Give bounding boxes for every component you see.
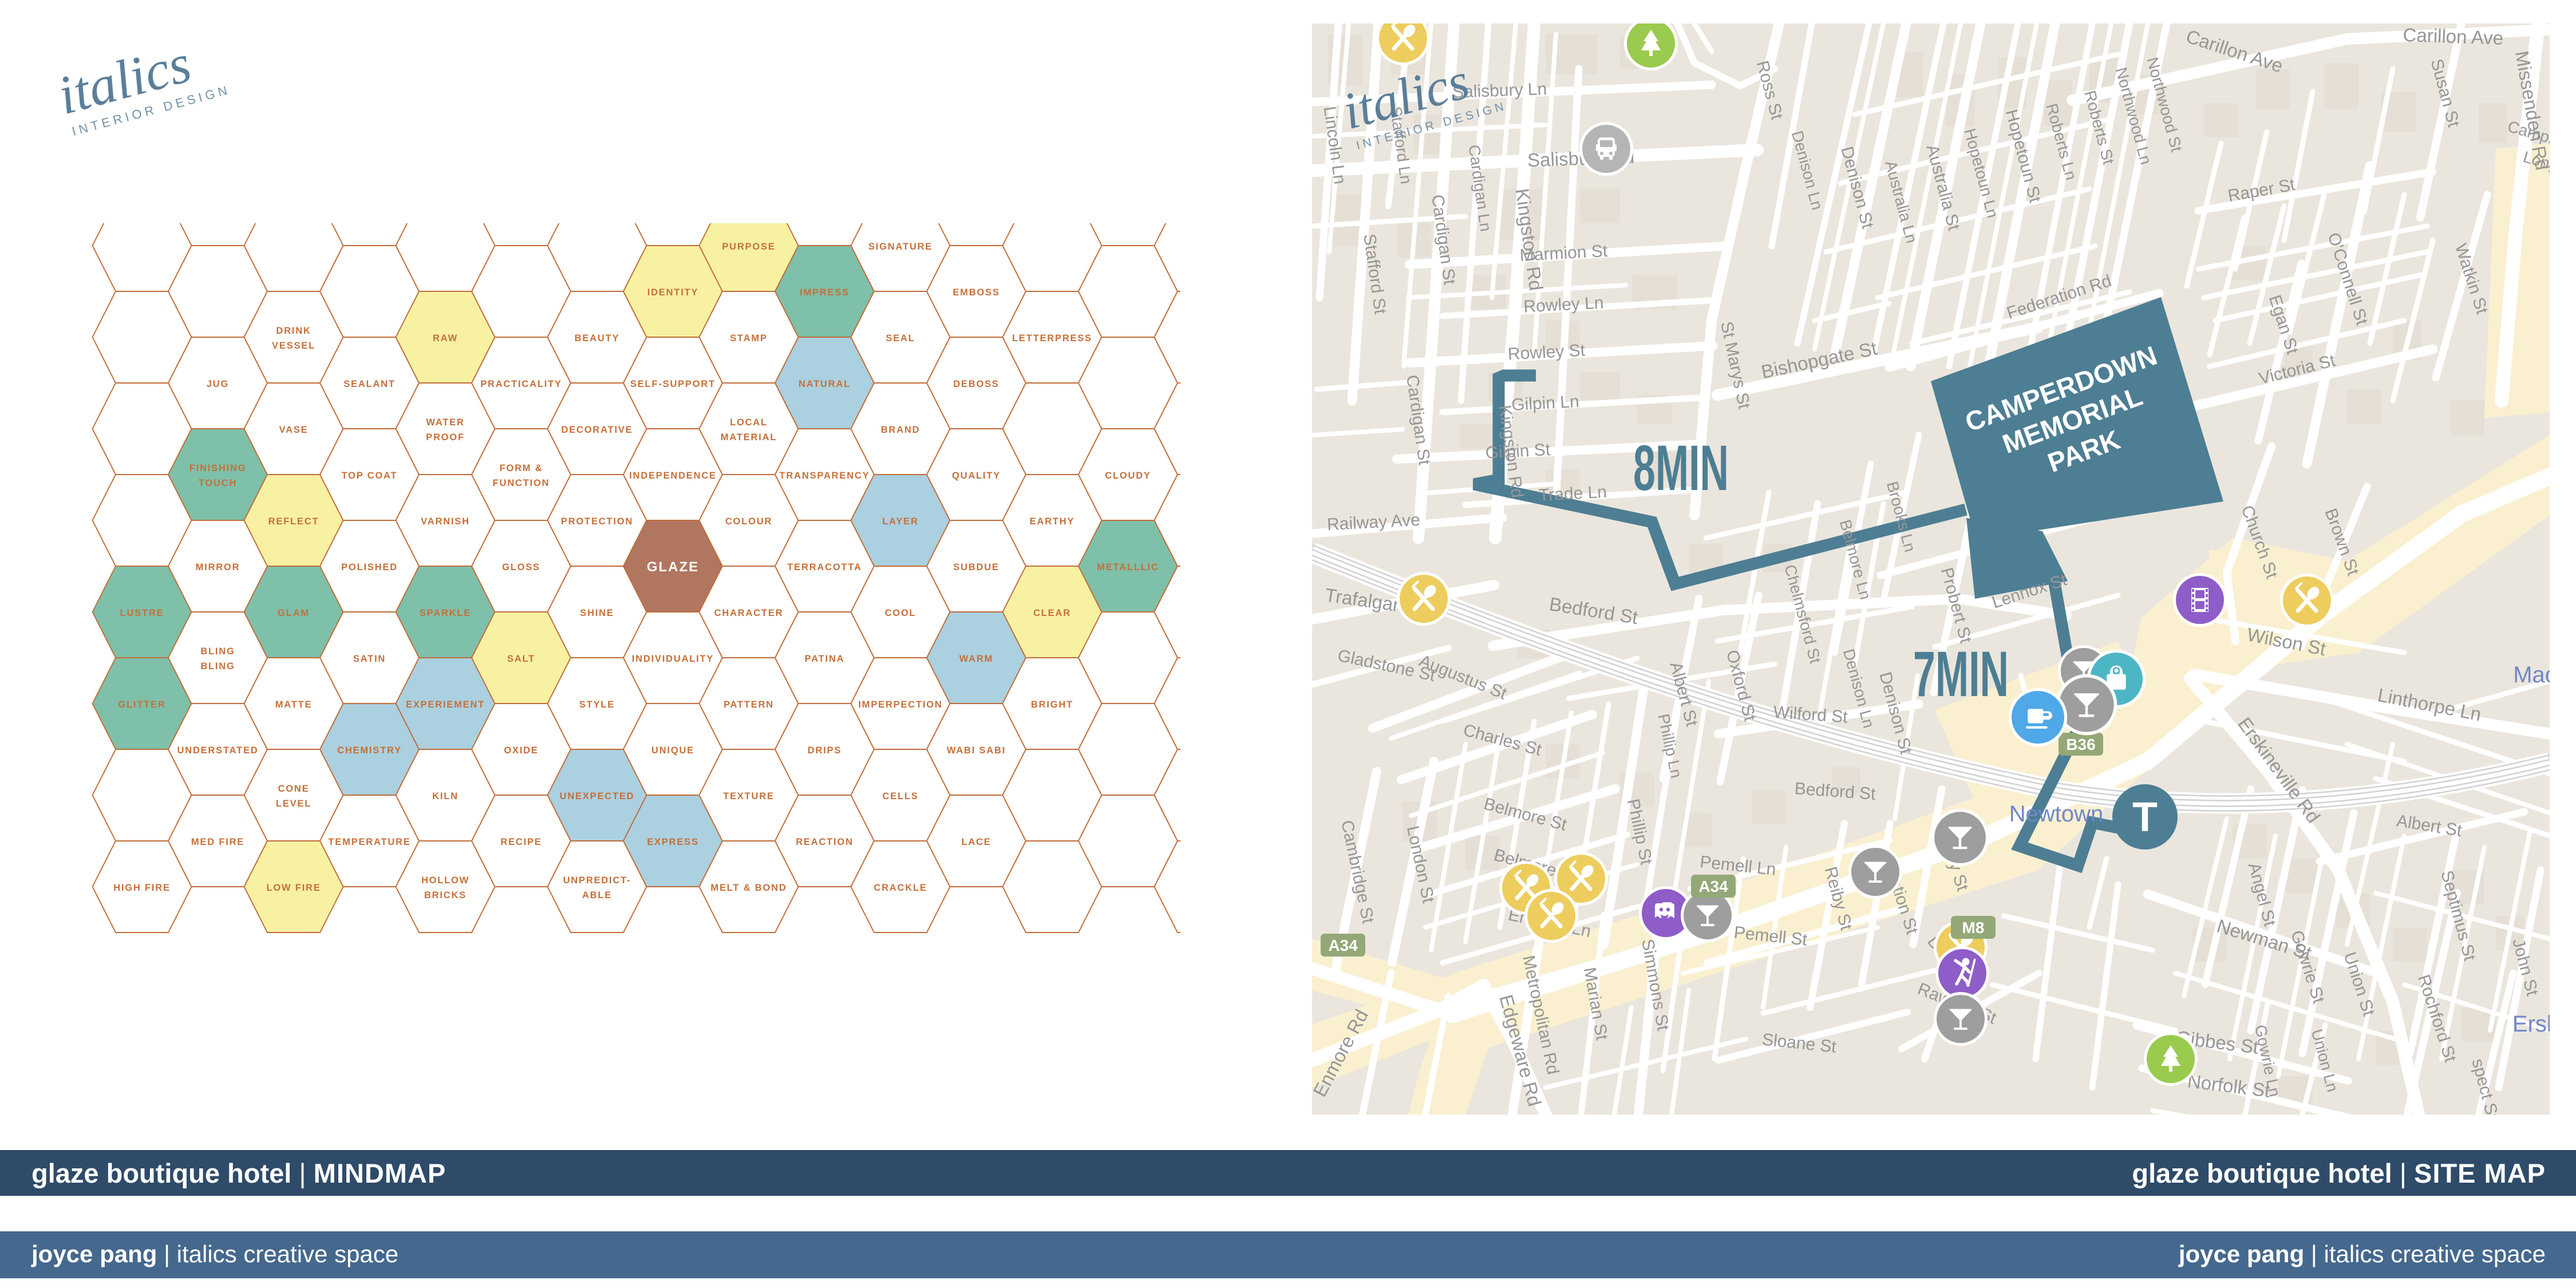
svg-text:KILN: KILN xyxy=(432,791,459,801)
svg-text:CLOUDY: CLOUDY xyxy=(1105,471,1151,481)
svg-text:INDIVIDUALITY: INDIVIDUALITY xyxy=(632,654,714,664)
svg-text:TOUCH: TOUCH xyxy=(199,478,237,488)
svg-text:A34: A34 xyxy=(1328,937,1358,954)
svg-text:BRICKS: BRICKS xyxy=(424,890,467,900)
svg-text:Gilpin St: Gilpin St xyxy=(1485,440,1551,463)
svg-text:BEAUTY: BEAUTY xyxy=(575,333,620,343)
svg-text:BLING: BLING xyxy=(200,646,235,657)
svg-text:glaze boutique hotel | MINDMA: glaze boutique hotel | MINDMAP xyxy=(31,1158,446,1188)
svg-text:COLOUR: COLOUR xyxy=(725,516,772,527)
svg-text:MATERIAL: MATERIAL xyxy=(721,432,777,442)
svg-text:SEALANT: SEALANT xyxy=(343,379,396,389)
svg-text:WATER: WATER xyxy=(426,417,464,428)
svg-text:BRIGHT: BRIGHT xyxy=(1031,700,1073,710)
svg-text:DRIPS: DRIPS xyxy=(808,745,841,756)
svg-text:SATIN: SATIN xyxy=(353,654,386,664)
svg-text:STAMP: STAMP xyxy=(730,333,768,343)
svg-text:CHEMISTRY: CHEMISTRY xyxy=(337,745,402,756)
svg-text:MIRROR: MIRROR xyxy=(196,562,240,572)
svg-text:GLAM: GLAM xyxy=(278,608,310,618)
svg-text:glaze boutique hotel | SITE M: glaze boutique hotel | SITE MAP xyxy=(2132,1158,2546,1188)
svg-text:8MIN: 8MIN xyxy=(1633,432,1729,504)
svg-text:JUG: JUG xyxy=(207,379,229,389)
svg-text:TEMPERATURE: TEMPERATURE xyxy=(328,837,410,847)
svg-text:SIGNATURE: SIGNATURE xyxy=(868,242,933,252)
svg-text:CHARACTER: CHARACTER xyxy=(714,608,784,618)
svg-text:GLAZE: GLAZE xyxy=(647,559,699,575)
svg-text:CLEAR: CLEAR xyxy=(1033,608,1071,618)
svg-text:FORM &: FORM & xyxy=(500,463,543,473)
svg-text:METALLLIC: METALLLIC xyxy=(1097,562,1159,572)
svg-text:VASE: VASE xyxy=(279,425,309,435)
svg-text:SELF-SUPPORT: SELF-SUPPORT xyxy=(630,379,716,389)
svg-text:BLING: BLING xyxy=(200,661,235,671)
svg-text:NATURAL: NATURAL xyxy=(799,379,851,389)
svg-text:M8: M8 xyxy=(1962,919,1985,937)
svg-text:IDENTITY: IDENTITY xyxy=(647,287,699,298)
svg-text:EMBOSS: EMBOSS xyxy=(953,287,999,298)
svg-text:TOP COAT: TOP COAT xyxy=(342,471,398,481)
svg-text:MED FIRE: MED FIRE xyxy=(191,837,244,847)
svg-text:REFLECT: REFLECT xyxy=(268,516,319,527)
svg-text:HIGH FIRE: HIGH FIRE xyxy=(113,883,171,893)
svg-text:joyce pang | italics creative: joyce pang | italics creative space xyxy=(2178,1240,2546,1267)
svg-text:TEXTURE: TEXTURE xyxy=(723,791,775,801)
svg-text:FUNCTION: FUNCTION xyxy=(493,478,550,488)
svg-text:Newtown: Newtown xyxy=(2009,801,2104,827)
svg-text:BRAND: BRAND xyxy=(881,425,920,435)
svg-text:UNEXPECTED: UNEXPECTED xyxy=(560,791,635,801)
svg-text:Mac: Mac xyxy=(2513,662,2557,688)
svg-text:DEBOSS: DEBOSS xyxy=(953,379,999,389)
svg-text:DECORATIVE: DECORATIVE xyxy=(562,425,633,435)
svg-text:TRANSPARENCY: TRANSPARENCY xyxy=(780,471,870,481)
svg-text:VARNISH: VARNISH xyxy=(421,516,470,527)
svg-text:RECIPE: RECIPE xyxy=(500,837,542,847)
svg-text:EARTHY: EARTHY xyxy=(1030,516,1075,527)
svg-text:LETTERPRESS: LETTERPRESS xyxy=(1012,333,1092,343)
svg-text:STYLE: STYLE xyxy=(579,700,615,710)
svg-text:UNIQUE: UNIQUE xyxy=(651,745,694,756)
svg-text:MELT & BOND: MELT & BOND xyxy=(710,883,787,893)
svg-text:FINISHING: FINISHING xyxy=(189,463,247,473)
svg-text:PATTERN: PATTERN xyxy=(724,700,774,710)
svg-text:TERRACOTTA: TERRACOTTA xyxy=(787,562,862,572)
svg-text:7MIN: 7MIN xyxy=(1913,638,2009,710)
svg-text:Erskir: Erskir xyxy=(2512,1012,2571,1037)
svg-text:SALT: SALT xyxy=(507,654,535,664)
svg-text:LUSTRE: LUSTRE xyxy=(120,608,164,618)
svg-text:POLISHED: POLISHED xyxy=(341,562,398,572)
svg-text:PROTECTION: PROTECTION xyxy=(561,516,633,527)
svg-text:SEAL: SEAL xyxy=(886,333,915,343)
svg-text:HOLLOW: HOLLOW xyxy=(421,875,469,886)
svg-text:IMPERPECTION: IMPERPECTION xyxy=(858,700,942,710)
svg-text:DRINK: DRINK xyxy=(276,326,311,336)
svg-text:PURPOSE: PURPOSE xyxy=(722,242,775,252)
svg-text:LOW FIRE: LOW FIRE xyxy=(266,883,321,893)
svg-text:SPARKLE: SPARKLE xyxy=(420,608,471,618)
svg-text:LACE: LACE xyxy=(961,837,991,847)
svg-text:B36: B36 xyxy=(2066,736,2095,753)
svg-text:ABLE: ABLE xyxy=(582,890,612,900)
svg-text:REACTION: REACTION xyxy=(796,837,854,847)
svg-text:PATINA: PATINA xyxy=(805,654,845,664)
svg-text:RAW: RAW xyxy=(433,333,458,343)
svg-text:T: T xyxy=(2132,795,2158,840)
svg-text:SUBDUE: SUBDUE xyxy=(953,562,999,572)
svg-text:Gilpin Ln: Gilpin Ln xyxy=(1511,392,1580,414)
svg-text:QUALITY: QUALITY xyxy=(952,471,1001,481)
svg-text:COOL: COOL xyxy=(885,608,916,618)
svg-text:CELLS: CELLS xyxy=(882,791,918,801)
svg-text:CRACKLE: CRACKLE xyxy=(874,883,927,893)
svg-text:VESSEL: VESSEL xyxy=(272,341,315,351)
svg-text:UNDERSTATED: UNDERSTATED xyxy=(177,745,258,756)
svg-text:Carillon Ave: Carillon Ave xyxy=(2403,24,2504,49)
svg-text:CONE: CONE xyxy=(278,784,310,794)
svg-text:EXPERIEMENT: EXPERIEMENT xyxy=(406,700,485,710)
svg-text:GLOSS: GLOSS xyxy=(502,562,540,572)
svg-text:LEVEL: LEVEL xyxy=(276,799,311,809)
svg-text:PROOF: PROOF xyxy=(426,432,465,442)
svg-text:Trade Ln: Trade Ln xyxy=(1538,483,1607,505)
svg-text:INDEPENDENCE: INDEPENDENCE xyxy=(629,471,717,481)
svg-text:IMPRESS: IMPRESS xyxy=(800,287,850,298)
svg-text:LOCAL: LOCAL xyxy=(730,417,768,428)
svg-text:PRACTICALITY: PRACTICALITY xyxy=(480,379,562,389)
svg-text:joyce pang | italics creative: joyce pang | italics creative space xyxy=(31,1240,398,1267)
svg-text:OXIDE: OXIDE xyxy=(504,745,538,756)
svg-text:WARM: WARM xyxy=(959,654,993,664)
svg-text:WABI SABI: WABI SABI xyxy=(947,745,1006,756)
svg-text:GLITTER: GLITTER xyxy=(118,700,165,710)
svg-text:UNPREDICT-: UNPREDICT- xyxy=(563,875,631,886)
svg-text:LAYER: LAYER xyxy=(882,516,918,527)
svg-text:MATTE: MATTE xyxy=(275,700,313,710)
svg-text:SHINE: SHINE xyxy=(580,608,614,618)
svg-text:A34: A34 xyxy=(1698,878,1728,895)
svg-text:EXPRESS: EXPRESS xyxy=(647,837,699,847)
